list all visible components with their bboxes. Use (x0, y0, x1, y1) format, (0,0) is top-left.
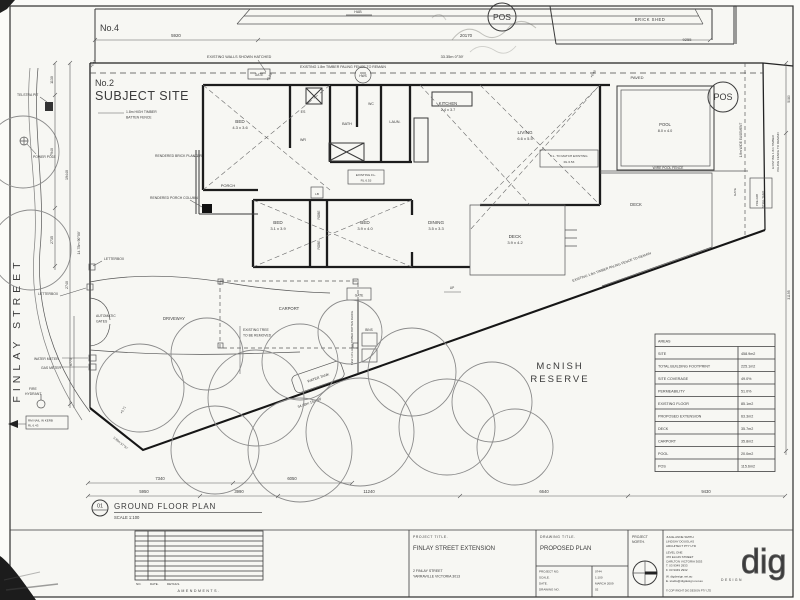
dim-11240: 11240 (363, 489, 375, 494)
room-label-laundry: LAUN. (389, 120, 400, 124)
room-label-bed1: BED (235, 119, 245, 124)
room-label-robe1: ROBE (317, 210, 321, 219)
firm-line: LINDSAY DOUGLAS (666, 539, 694, 543)
fire-hydrant-label-2: HYDRANT (25, 392, 41, 396)
areas-row-label: SITE (658, 352, 667, 356)
areas-row-value: 458.9m2 (741, 352, 755, 356)
automatic-gates-label-1: AUTOMATIC (96, 314, 116, 318)
firm-line: CARLTON VICTORIA 3053 (666, 559, 703, 563)
batten-fence-note-2: BATTEN FENCE (126, 116, 152, 120)
dim-5950: 5950 (139, 489, 149, 494)
areas-row-label: EXISTING FLOOR (658, 402, 689, 406)
dim-20170: 20170 (460, 33, 473, 38)
dim-6640: 6640 (539, 489, 549, 494)
bins-label: BINS (365, 328, 372, 332)
gate-top-label: GATE (255, 73, 263, 77)
fence-note-right-2: PALING FENCE TO REMAIN (776, 132, 780, 171)
areas-row-value: 20.0m2 (741, 452, 753, 456)
dim-6775: 6775 (69, 358, 73, 366)
letterbox-label-1: LETTERBOX (104, 257, 125, 261)
driveway-label: DRIVEWAY (163, 316, 185, 321)
up-label: UP (450, 286, 454, 290)
deck-right-label: DECK (630, 202, 642, 207)
fl-existing-label-2: RL 6.53 (361, 179, 372, 183)
project-north-label-2: NORTH. (632, 540, 645, 544)
room-label-bed2: BED (273, 220, 283, 225)
dim-7940: 7940 (50, 148, 54, 156)
meta-value-project-no: 0744 (595, 570, 602, 574)
room-label-robe2: ROBE (317, 240, 321, 249)
dim-5920: 5920 (171, 33, 181, 38)
prefab-shed-label-1: PRE-FAB (755, 194, 759, 206)
room-size-bed3: 3.9 x 4.0 (357, 226, 373, 231)
areas-header: AREAS (658, 340, 671, 344)
north-compass-icon (633, 561, 657, 585)
drawing-title: PROPOSED PLAN (540, 546, 591, 552)
no4-label: No.4 (100, 23, 119, 33)
carport-label: CARPORT (279, 306, 300, 311)
areas-row-label: DECK (658, 427, 669, 431)
batten-fence-note-1: 1.8m HIGH TIMBER (126, 110, 157, 114)
pool-label: POOL (659, 122, 671, 127)
dim-9255: 9255 (683, 37, 693, 42)
letterbox-label-2: LETTERBOX (38, 292, 59, 296)
room-label-deck-mid: DECK (509, 234, 523, 239)
dim-3990: 3990 (234, 489, 244, 494)
firm-line: W. digdesign.net.au (666, 575, 693, 579)
dim-31195: 31195 (787, 290, 791, 299)
project-title-label: PROJECT TITLE. (413, 535, 448, 539)
dim-9430: 9430 (701, 489, 711, 494)
room-size-kitchen: 2.4 x 3.7 (441, 108, 456, 112)
brick-shed-label: BRICK SHED (635, 17, 666, 22)
lb-label: LB (315, 192, 319, 196)
telstra-pit-icon (45, 102, 53, 111)
firm-line: LEVEL ONE (666, 551, 683, 555)
areas-row-value: 63.3m2 (741, 415, 753, 419)
amendments-col-details: DETAILS. (167, 582, 180, 586)
areas-row-value: 35.7m2 (741, 427, 753, 431)
room-label-bath: BATH (342, 122, 352, 126)
meta-value-scale: 1:100 (595, 576, 603, 580)
pos-label-right: POS (713, 92, 732, 102)
water-meter-label: WATER METER (34, 357, 59, 361)
planter-note: RENDERED BRICK PLANTER (155, 154, 202, 158)
reserve-label-1: McNISH (536, 361, 583, 372)
telstra-pit-label: TELSTRA PIT (17, 93, 38, 97)
wire-pool-fence-label: WIRE POOL FENCE (653, 166, 684, 170)
plan-title: GROUND FLOOR PLAN (114, 502, 216, 511)
areas-row-value: 51.0% (741, 390, 752, 394)
pool-size: 8.0 x 4.0 (658, 129, 673, 133)
firm-line: 476 ELGIN STREET (666, 555, 694, 559)
areas-row-label: PROPOSED EXTENSION (658, 415, 702, 419)
fence-note-right-1: EXISTING 1.8m TIMBER (771, 134, 775, 168)
subject-site-label: SUBJECT SITE (95, 89, 189, 103)
room-label-wr: WR (300, 138, 306, 142)
gas-meter-label: GAS METER (41, 366, 62, 370)
room-label-kitchen: KITCHEN (439, 101, 457, 106)
reserve-label-2: RESERVE (530, 374, 589, 385)
meta-value-drawing-no: 02 (595, 588, 599, 592)
dim-1130: 1130 (50, 76, 54, 84)
meta-label-drawing-no: DRAWING NO. (539, 588, 560, 592)
callout-number: 01 (97, 504, 103, 510)
dig-logo: dig (741, 543, 786, 581)
project-north-label-1: PROJECT (632, 535, 648, 539)
room-size-deck-mid: 3.9 x 4.2 (507, 240, 523, 245)
areas-row-label: POOL (658, 452, 668, 456)
fl-match-label-2: RL 6.53 (564, 160, 575, 164)
dim-7340: 7340 (155, 476, 165, 481)
copyright-line: © COPYRIGHT DIG DESIGN PTY LTD (666, 589, 711, 593)
hws-label: HWS (359, 74, 366, 78)
drawing-title-label: DRAWING TITLE. (540, 535, 576, 539)
easement-label: 1.8m WIDE EASEMENT (739, 123, 743, 158)
dim-19440: 19440 (65, 170, 69, 180)
new-batten-fence-note: NEW 1.8m HIGH TIMBER BATTEN FENCE (350, 311, 354, 366)
room-size-dining: 3.5 x 3.3 (428, 226, 444, 231)
areas-row-label: POS (658, 465, 666, 469)
areas-row-label: PERMEABILITY (658, 390, 685, 394)
scanned-site-plan-page: HAB No.4 5920 20170 BRICK SHED 9255 POS … (0, 0, 800, 600)
room-label-living: LIVING (517, 130, 532, 135)
tree-removal-note-1: EXISTING TREE (243, 328, 269, 332)
pos-label-top: POS (493, 12, 511, 22)
project-address-2: YARRAVILLE VICTORIA 3013 (413, 575, 460, 579)
dig-logo-sub: DESIGN (721, 578, 743, 582)
fl-match-label-1: F.L. TO MATCH EXISTING (551, 154, 589, 158)
room-label-dining: DINING (428, 220, 445, 225)
firm-line: E. studio@digdesign.net.au (666, 579, 703, 583)
room-size-bed1: 4.3 x 3.6 (232, 125, 248, 130)
dim-5080: 5080 (787, 95, 791, 103)
room-label-bed3: BED (360, 220, 370, 225)
fire-hydrant-label-1: FIRE (29, 387, 37, 391)
areas-row-value: 225.1m2 (741, 365, 755, 369)
gate-right-label: GATE (733, 188, 737, 196)
project-title: FINLAY STREET EXTENSION (413, 546, 495, 552)
areas-row-label: TOTAL BUILDING FOOTPRINT (658, 365, 711, 369)
site-plan-drawing: HAB No.4 5920 20170 BRICK SHED 9255 POS … (0, 0, 800, 600)
bearing-top: 33.35m 0°39' (441, 54, 464, 59)
dim-6050: 6050 (287, 476, 297, 481)
paved-label: PAVED (631, 75, 644, 80)
firm-line: JULIE-ANNE SMITH (666, 535, 694, 539)
meta-label-project-no: PROJECT NO. (539, 570, 559, 574)
prefab-shed-label-2: STEEL SHED (761, 191, 765, 208)
amendments-label: AMENDMENTS. (177, 589, 220, 593)
no2-label: No.2 (95, 78, 114, 88)
bearing-left: 14.78m 90°00' (77, 231, 81, 254)
tree-removal-note-2: TO BE REMOVED (243, 334, 272, 338)
firm-line: F. 03 9349 2932 (666, 568, 688, 572)
room-label-porch: PORCH (221, 183, 236, 188)
plan-scale: SCALE 1:100 (114, 515, 140, 520)
dim-2740: 2740 (65, 281, 69, 289)
rm-nail-label-2: RL 6.43 (28, 424, 39, 428)
amendments-col-date: DATE. (150, 582, 159, 586)
rm-nail-label-1: RM NAIL IN KERB (28, 419, 53, 423)
areas-row-value: 115.6m2 (741, 465, 755, 469)
finlay-street-label: FINLAY STREET (11, 257, 23, 402)
meta-label-date: DATE. (539, 582, 548, 586)
firm-line: ARCHITECT PTY LTD (666, 544, 697, 548)
firm-line: T. 03 9349 2933 (666, 564, 688, 568)
room-label-ensuite: ES (301, 110, 306, 114)
amendments-col-no: NO. (136, 582, 142, 586)
areas-row-value: 85.1m2 (741, 402, 753, 406)
room-label-wc: WC (368, 102, 374, 106)
areas-row-label: CARPORT (658, 440, 677, 444)
room-size-living: 6.6 x 5.5 (517, 136, 533, 141)
areas-row-label: SITE COVERAGE (658, 377, 689, 381)
porch-column-note: RENDERED PORCH COLUMN (150, 196, 198, 200)
fl-existing-label-1: EXISTING F.L. (356, 173, 376, 177)
hab-window-label: HAB (354, 10, 362, 14)
project-address-1: 2 FINLAY STREET (413, 569, 443, 573)
fence-note-top: EXISTING 1.8m TIMBER PALING FENCE TO REM… (300, 65, 386, 69)
existing-walls-note: EXISTING WALLS SHOWN HATCHED (207, 55, 272, 59)
meta-value-date: MARCH 2009 (595, 582, 614, 586)
automatic-gates-label-2: GATES (96, 320, 108, 324)
areas-row-value: 35.8m2 (741, 440, 753, 444)
gate-mid-label: GATE (355, 294, 363, 298)
meta-label-scale: SCALE. (539, 576, 550, 580)
dim-2735: 2735 (50, 236, 54, 244)
areas-row-value: 49.0% (741, 377, 752, 381)
room-size-bed2: 3.1 x 3.9 (270, 226, 286, 231)
porch-column-icon (202, 204, 212, 213)
